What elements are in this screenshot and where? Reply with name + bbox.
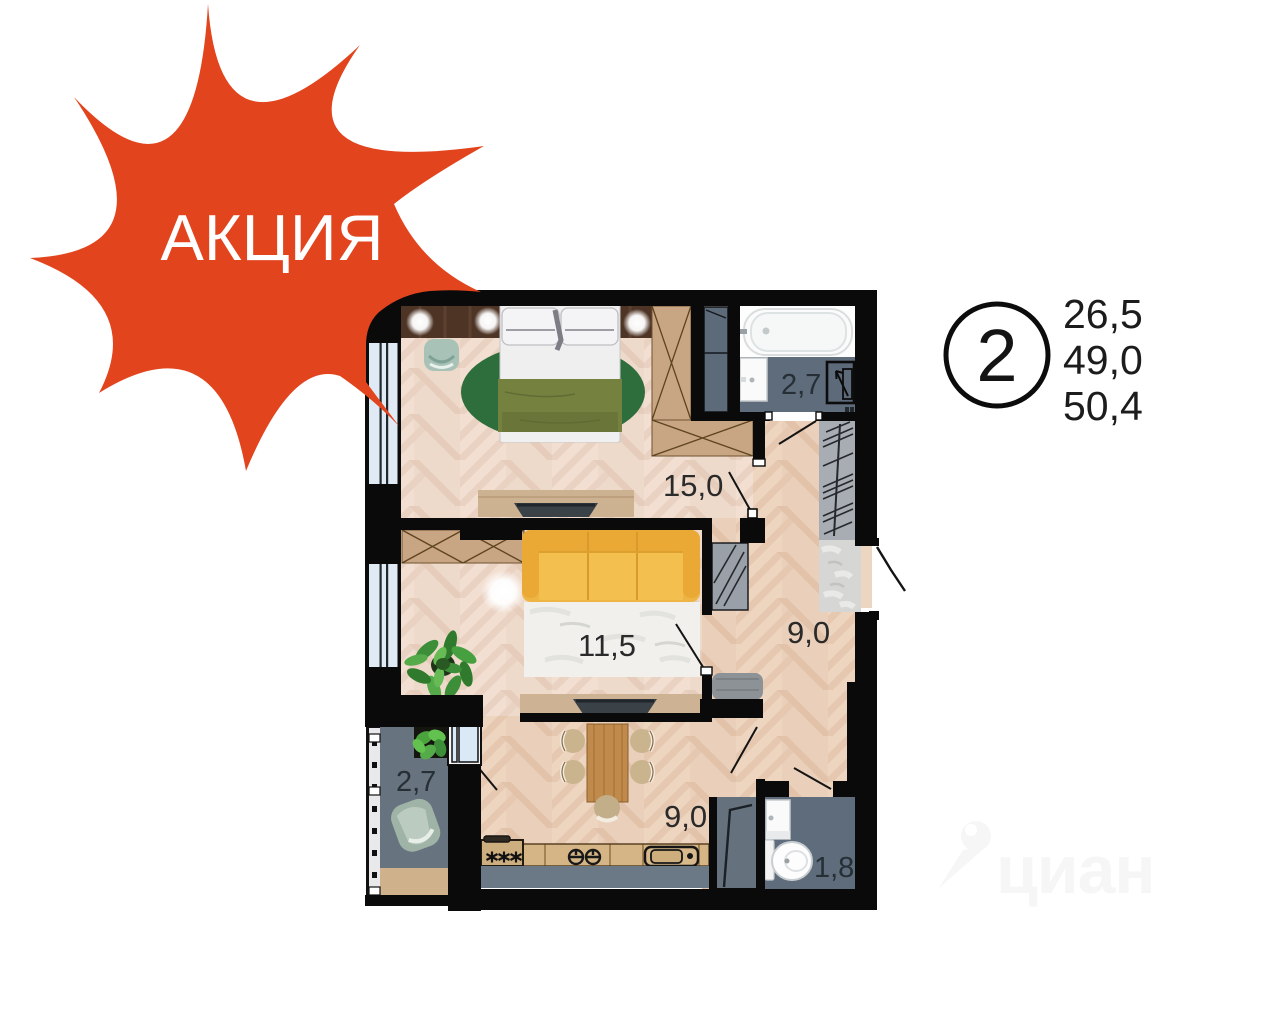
svg-text:циан: циан	[996, 832, 1155, 908]
svg-text:50,4: 50,4	[1063, 383, 1143, 429]
svg-text:2,7: 2,7	[781, 369, 821, 401]
svg-text:9,0: 9,0	[664, 799, 707, 834]
svg-text:2: 2	[976, 314, 1017, 397]
svg-text:11,5: 11,5	[578, 628, 636, 663]
svg-text:49,0: 49,0	[1063, 337, 1143, 383]
svg-text:2,7: 2,7	[396, 766, 436, 798]
svg-text:15,0: 15,0	[663, 468, 723, 503]
svg-text:26,5: 26,5	[1063, 291, 1143, 337]
svg-text:АКЦИЯ: АКЦИЯ	[161, 201, 384, 274]
svg-text:1,8: 1,8	[814, 852, 854, 884]
svg-text:9,0: 9,0	[787, 615, 830, 650]
